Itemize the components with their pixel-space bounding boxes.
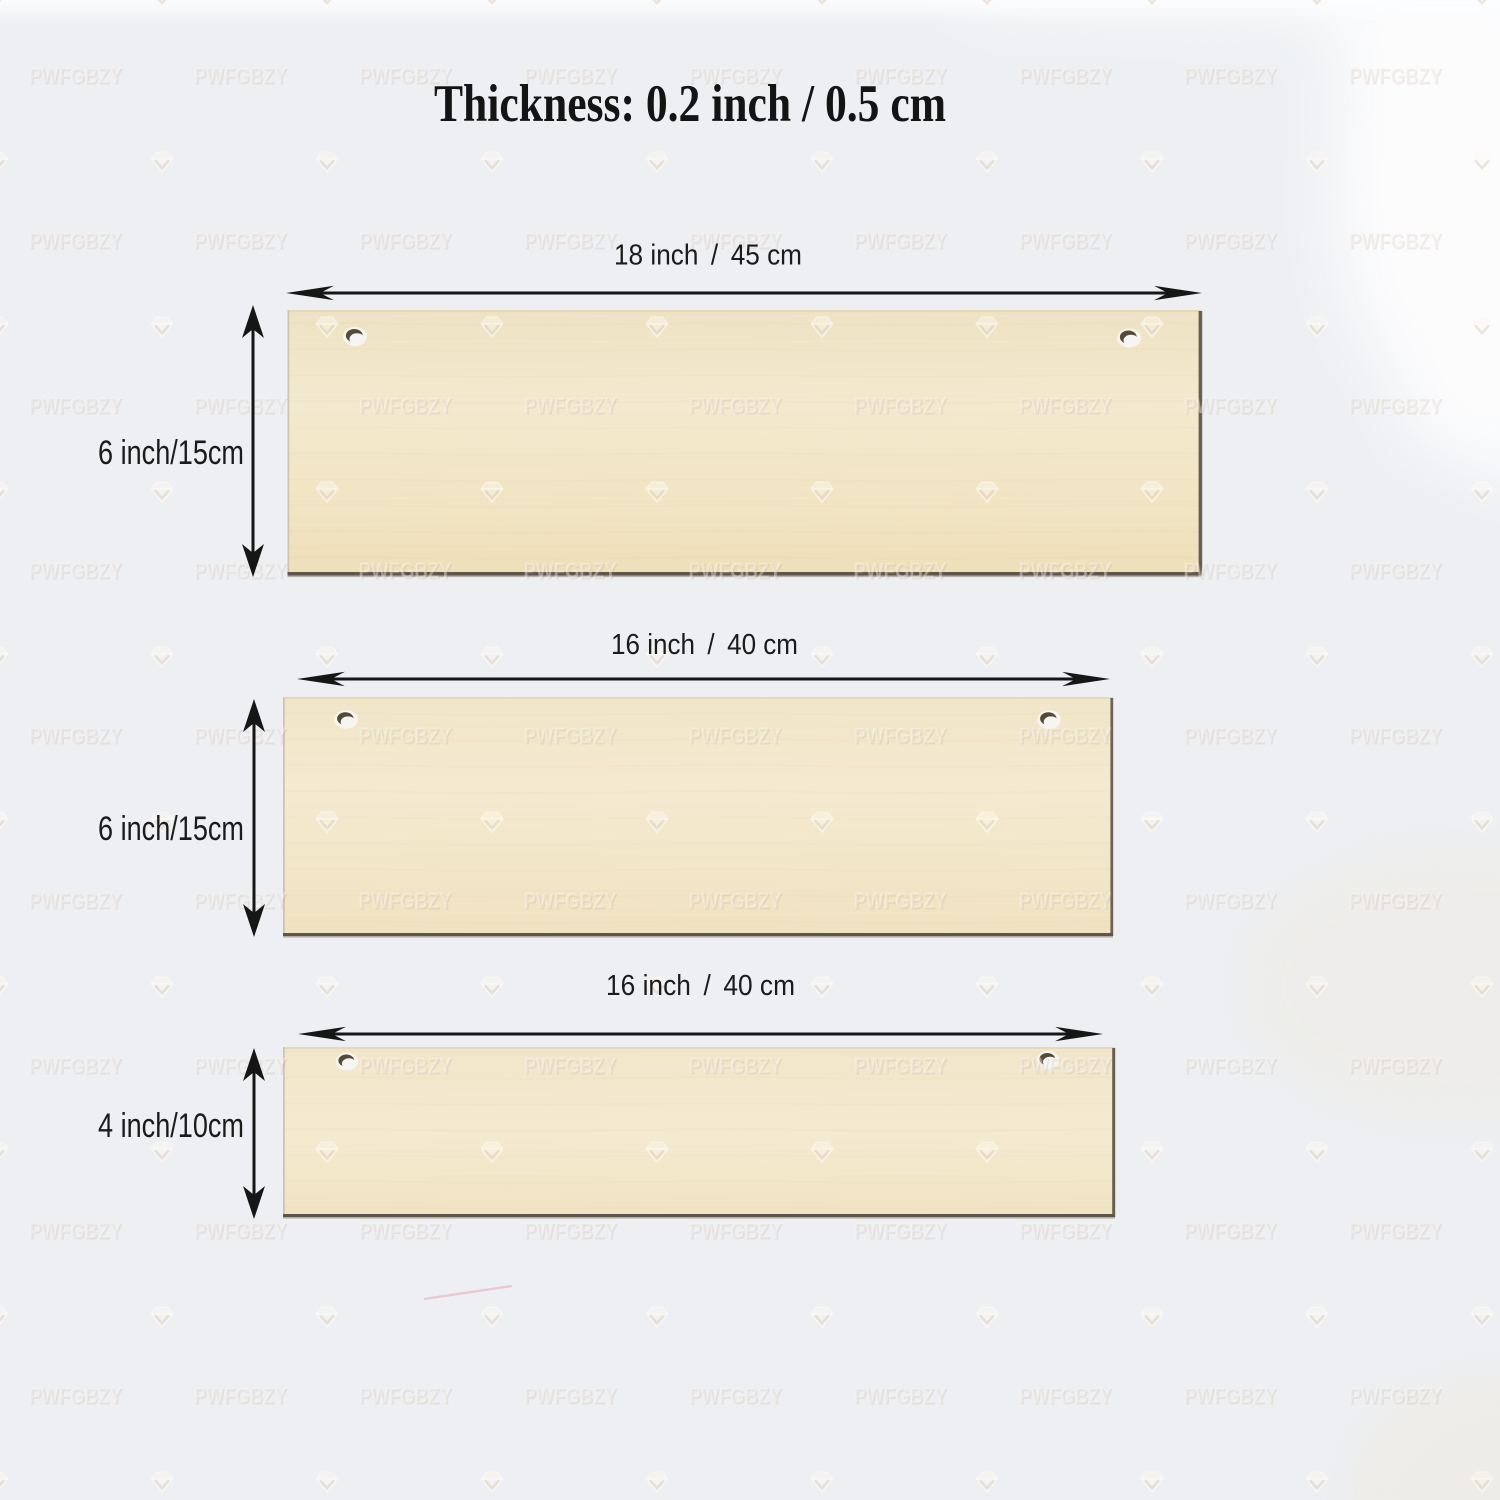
svg-text:Thickness: 0.2 inch / 0.5 cm: Thickness: 0.2 inch / 0.5 cm xyxy=(434,75,946,133)
svg-text:4 inch/10cm: 4 inch/10cm xyxy=(98,1107,244,1145)
svg-text:16 inch / 40 cm: 16 inch / 40 cm xyxy=(606,970,795,1002)
svg-text:6 inch/15cm: 6 inch/15cm xyxy=(98,434,244,472)
svg-text:16 inch / 40 cm: 16 inch / 40 cm xyxy=(611,629,798,661)
svg-text:18 inch / 45 cm: 18 inch / 45 cm xyxy=(614,240,802,272)
svg-text:6 inch/15cm: 6 inch/15cm xyxy=(98,810,244,848)
